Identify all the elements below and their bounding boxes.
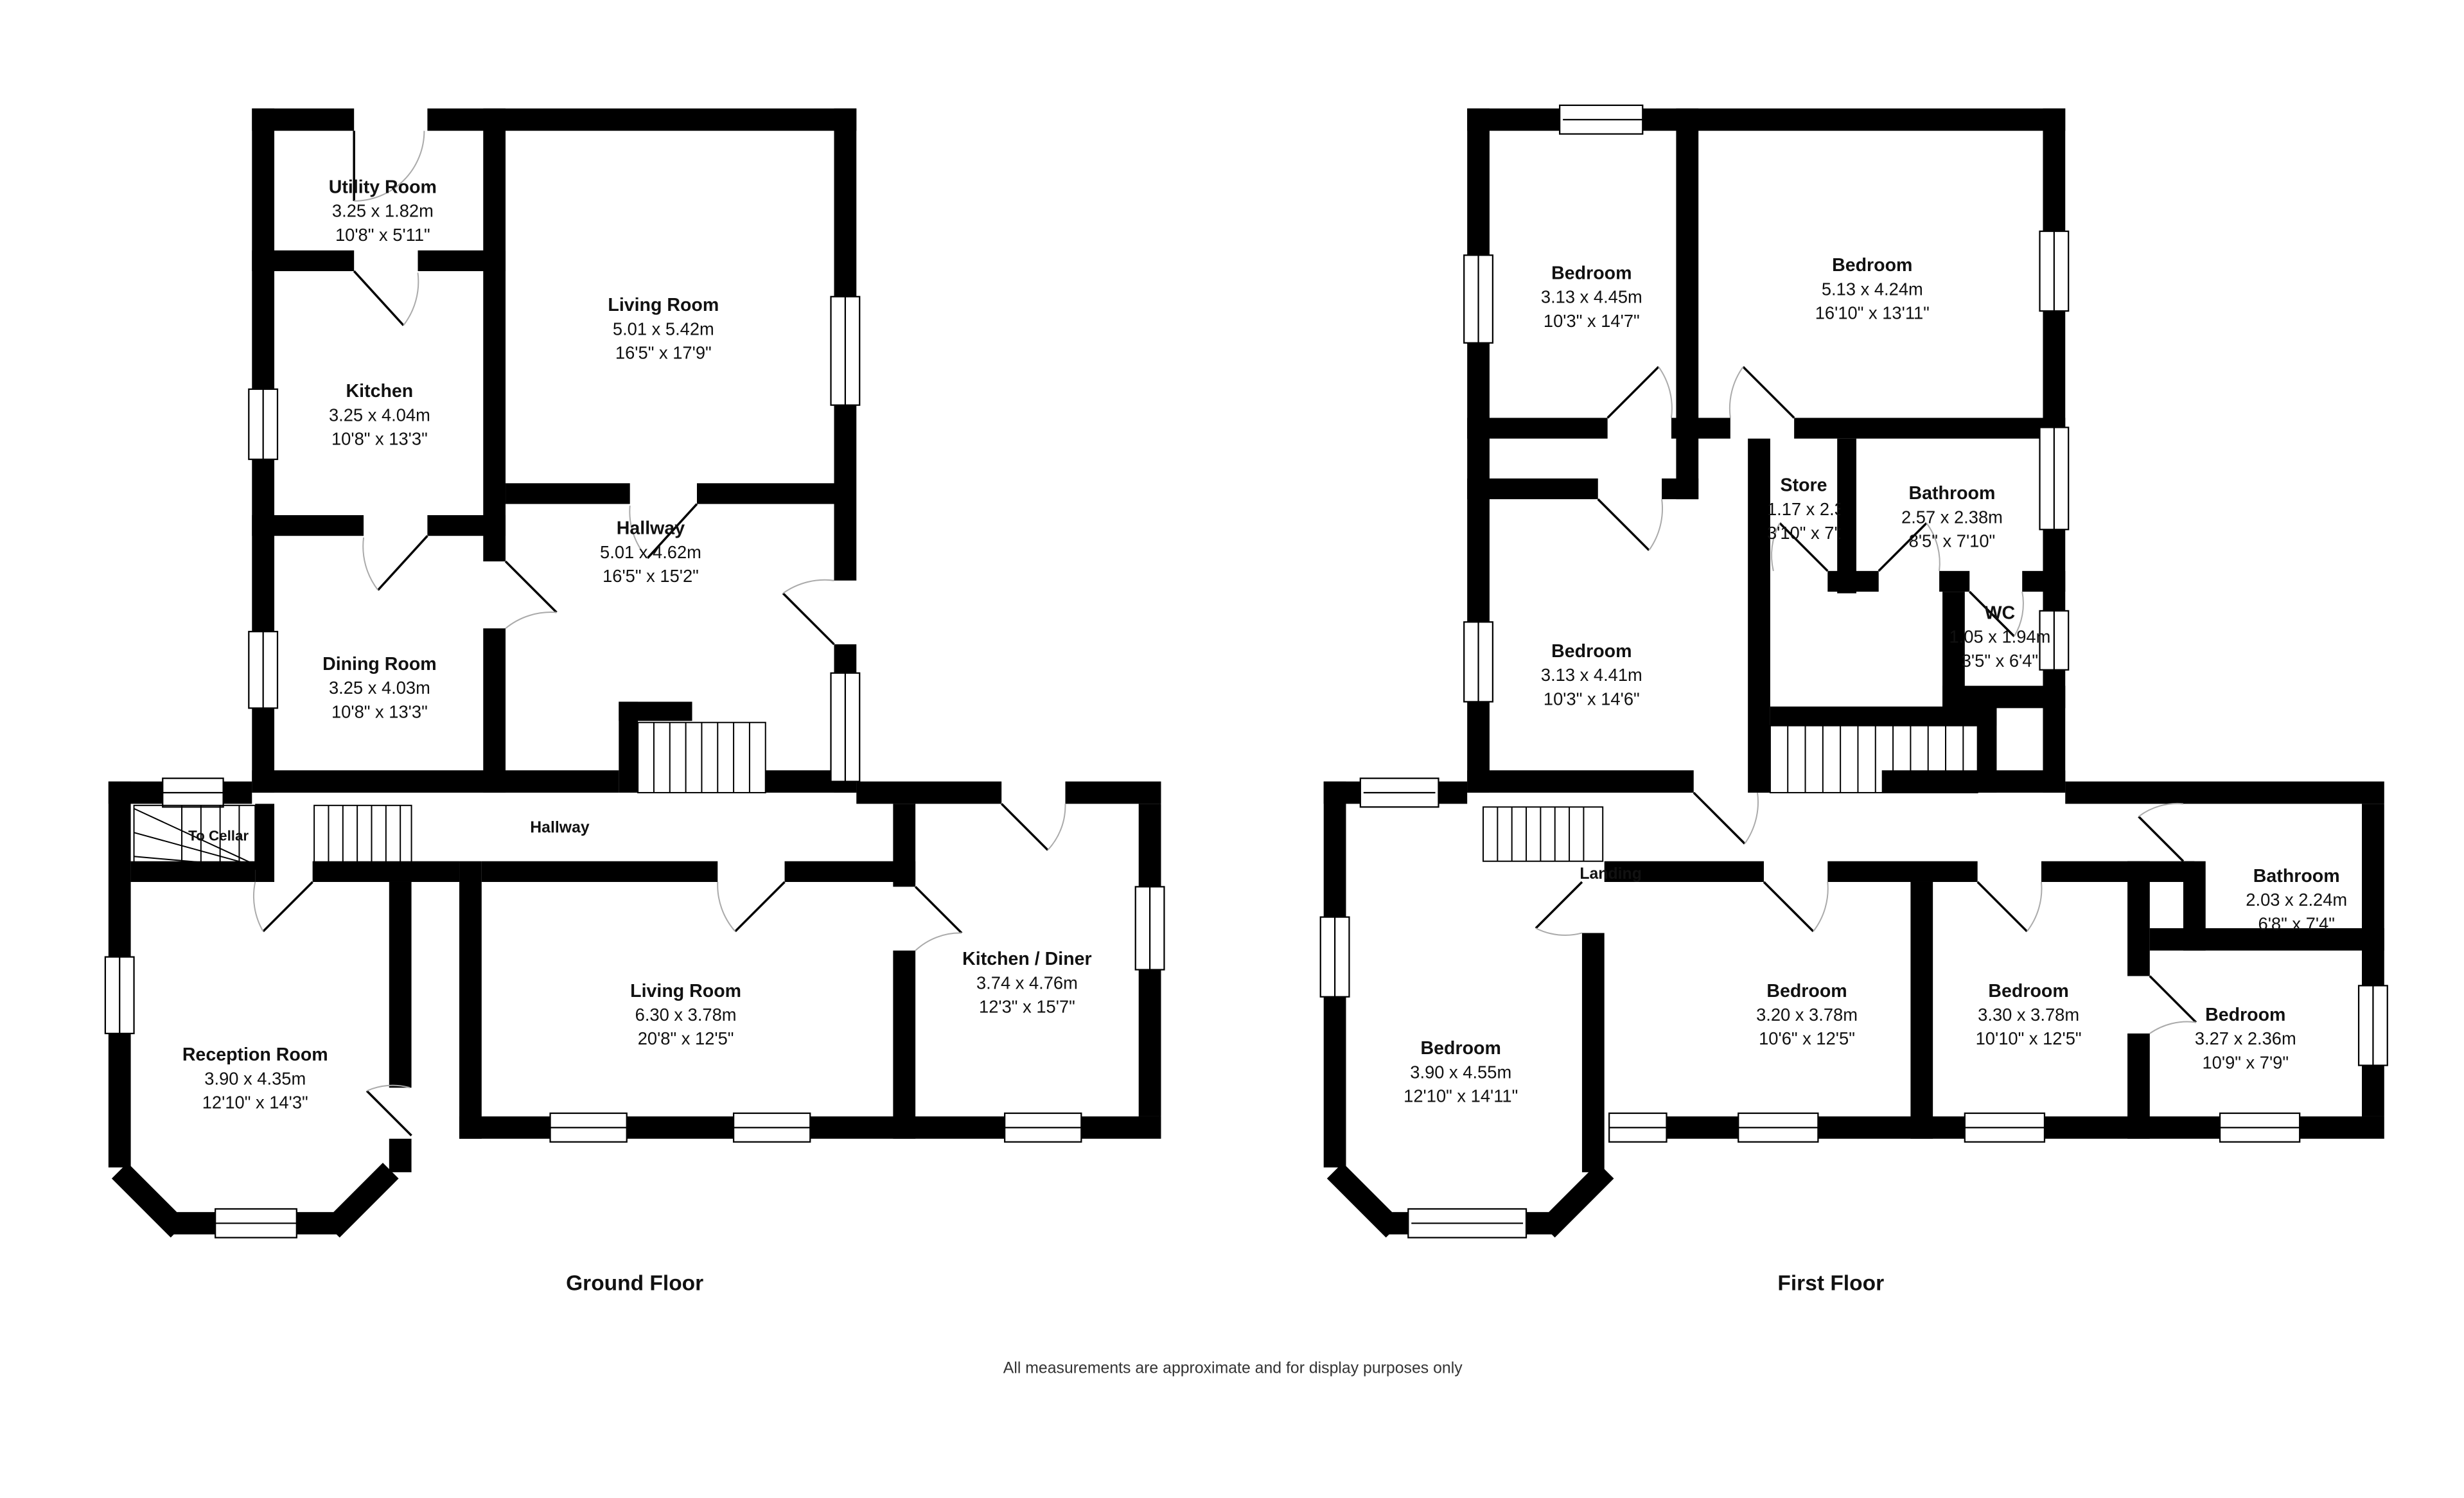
label-landing: Landing — [1515, 866, 1707, 883]
room-name: Kitchen — [260, 380, 499, 405]
room-label-bedroom: Bedroom3.20 x 3.78m10'6" x 12'5" — [1687, 979, 1926, 1052]
room-metric: 3.25 x 4.04m — [260, 405, 499, 429]
room-name: Bedroom — [1909, 979, 2148, 1005]
room-label-dining-room: Dining Room3.25 x 4.03m10'8" x 13'3" — [260, 652, 499, 725]
room-label-bathroom: Bathroom2.03 x 2.24m6'8" x 7'4" — [2177, 865, 2416, 938]
room-label-wc: WC1.05 x 1.94m3'5" x 6'4" — [1880, 601, 2119, 674]
room-metric: 6.30 x 3.78m — [566, 1005, 805, 1028]
room-label-bathroom: Bathroom2.57 x 2.38m8'5" x 7'10" — [1833, 482, 2072, 555]
room-label-store: Store1.17 x 2.38m3'10" x 7'10" — [1767, 473, 1840, 547]
room-imperial: 16'10" x 13'11" — [1753, 303, 1992, 327]
room-name: Bathroom — [2177, 865, 2416, 890]
room-label-bedroom: Bedroom3.30 x 3.78m10'10" x 12'5" — [1909, 979, 2148, 1052]
floorplan-page: All measurements are approximate and for… — [0, 0, 2464, 1498]
label-hallway: Hallway — [464, 820, 655, 837]
room-name: Bedroom — [1472, 261, 1711, 287]
room-imperial: 10'10" x 12'5" — [1909, 1028, 2148, 1052]
room-imperial: 6'8" x 7'4" — [2177, 914, 2416, 938]
room-imperial: 10'6" x 12'5" — [1687, 1028, 1926, 1052]
room-imperial: 20'8" x 12'5" — [566, 1028, 805, 1052]
room-name: Bedroom — [2126, 1003, 2365, 1029]
room-name: Bedroom — [1687, 979, 1926, 1005]
label-to-cellar: To Cellar — [123, 828, 314, 844]
room-name: Dining Room — [260, 652, 499, 678]
room-metric: 3.20 x 3.78m — [1687, 1005, 1926, 1028]
floor-title-ground-floor: Ground Floor — [507, 1271, 762, 1295]
room-metric: 3.90 x 4.35m — [136, 1068, 374, 1092]
ff-stairs-icon — [1483, 726, 1978, 861]
room-imperial: 10'3" x 14'7" — [1472, 311, 1711, 335]
room-label-bedroom: Bedroom3.13 x 4.45m10'3" x 14'7" — [1472, 261, 1711, 335]
room-imperial: 8'5" x 7'10" — [1833, 531, 2072, 555]
room-metric: 2.57 x 2.38m — [1833, 507, 2072, 531]
room-name: Hallway — [531, 516, 770, 542]
room-metric: 3.27 x 2.36m — [2126, 1028, 2365, 1052]
room-imperial: 10'8" x 5'11" — [263, 225, 502, 249]
room-name: Living Room — [544, 294, 783, 319]
room-imperial: 12'10" x 14'11" — [1341, 1086, 1580, 1110]
room-name: Utility Room — [263, 175, 502, 201]
room-metric: 5.01 x 5.42m — [544, 319, 783, 343]
room-imperial: 10'8" x 13'3" — [260, 701, 499, 725]
room-name: Bathroom — [1833, 482, 2072, 507]
room-metric: 3.13 x 4.45m — [1472, 287, 1711, 311]
room-metric: 5.13 x 4.24m — [1753, 279, 1992, 303]
room-imperial: 3'10" x 7'10" — [1767, 523, 1840, 547]
room-imperial: 10'3" x 14'6" — [1472, 689, 1711, 713]
room-label-living-room: Living Room5.01 x 5.42m16'5" x 17'9" — [544, 294, 783, 367]
room-label-hallway: Hallway5.01 x 4.62m16'5" x 15'2" — [531, 516, 770, 590]
room-name: Bedroom — [1341, 1037, 1580, 1062]
room-metric: 3.25 x 4.03m — [260, 678, 499, 701]
room-metric: 2.03 x 2.24m — [2177, 890, 2416, 913]
room-imperial: 3'5" x 6'4" — [1880, 651, 2119, 674]
room-label-kitchen-diner: Kitchen / Diner3.74 x 4.76m12'3" x 15'7" — [908, 947, 1147, 1021]
room-name: Bedroom — [1753, 254, 1992, 279]
room-metric: 1.17 x 2.38m — [1767, 499, 1840, 523]
room-metric: 1.05 x 1.94m — [1880, 627, 2119, 651]
room-label-kitchen: Kitchen3.25 x 4.04m10'8" x 13'3" — [260, 380, 499, 453]
room-metric: 3.25 x 1.82m — [263, 201, 502, 225]
room-imperial: 12'3" x 15'7" — [908, 997, 1147, 1021]
room-label-utility-room: Utility Room3.25 x 1.82m10'8" x 5'11" — [263, 175, 502, 249]
room-label-living-room: Living Room6.30 x 3.78m20'8" x 12'5" — [566, 979, 805, 1052]
room-name: Store — [1767, 473, 1840, 499]
room-label-bedroom: Bedroom3.13 x 4.41m10'3" x 14'6" — [1472, 640, 1711, 713]
room-imperial: 10'8" x 13'3" — [260, 429, 499, 453]
floorplan-canvas: All measurements are approximate and for… — [0, 0, 2464, 1497]
room-name: WC — [1880, 601, 2119, 627]
room-imperial: 16'5" x 15'2" — [531, 566, 770, 590]
room-metric: 3.13 x 4.41m — [1472, 665, 1711, 689]
room-imperial: 12'10" x 14'3" — [136, 1093, 374, 1116]
room-name: Bedroom — [1472, 640, 1711, 665]
measurements-disclaimer: All measurements are approximate and for… — [914, 1361, 1552, 1378]
room-label-reception-room: Reception Room3.90 x 4.35m12'10" x 14'3" — [136, 1043, 374, 1116]
room-label-bedroom: Bedroom3.90 x 4.55m12'10" x 14'11" — [1341, 1037, 1580, 1110]
room-metric: 3.30 x 3.78m — [1909, 1005, 2148, 1028]
room-imperial: 16'5" x 17'9" — [544, 343, 783, 367]
room-metric: 3.74 x 4.76m — [908, 973, 1147, 997]
room-metric: 5.01 x 4.62m — [531, 542, 770, 566]
room-label-bedroom: Bedroom3.27 x 2.36m10'9" x 7'9" — [2126, 1003, 2365, 1077]
room-name: Reception Room — [136, 1043, 374, 1069]
room-name: Living Room — [566, 979, 805, 1005]
room-metric: 3.90 x 4.55m — [1341, 1062, 1580, 1086]
room-name: Kitchen / Diner — [908, 947, 1147, 973]
room-imperial: 10'9" x 7'9" — [2126, 1053, 2365, 1077]
room-label-bedroom: Bedroom5.13 x 4.24m16'10" x 13'11" — [1753, 254, 1992, 327]
floor-title-first-floor: First Floor — [1703, 1271, 1958, 1295]
